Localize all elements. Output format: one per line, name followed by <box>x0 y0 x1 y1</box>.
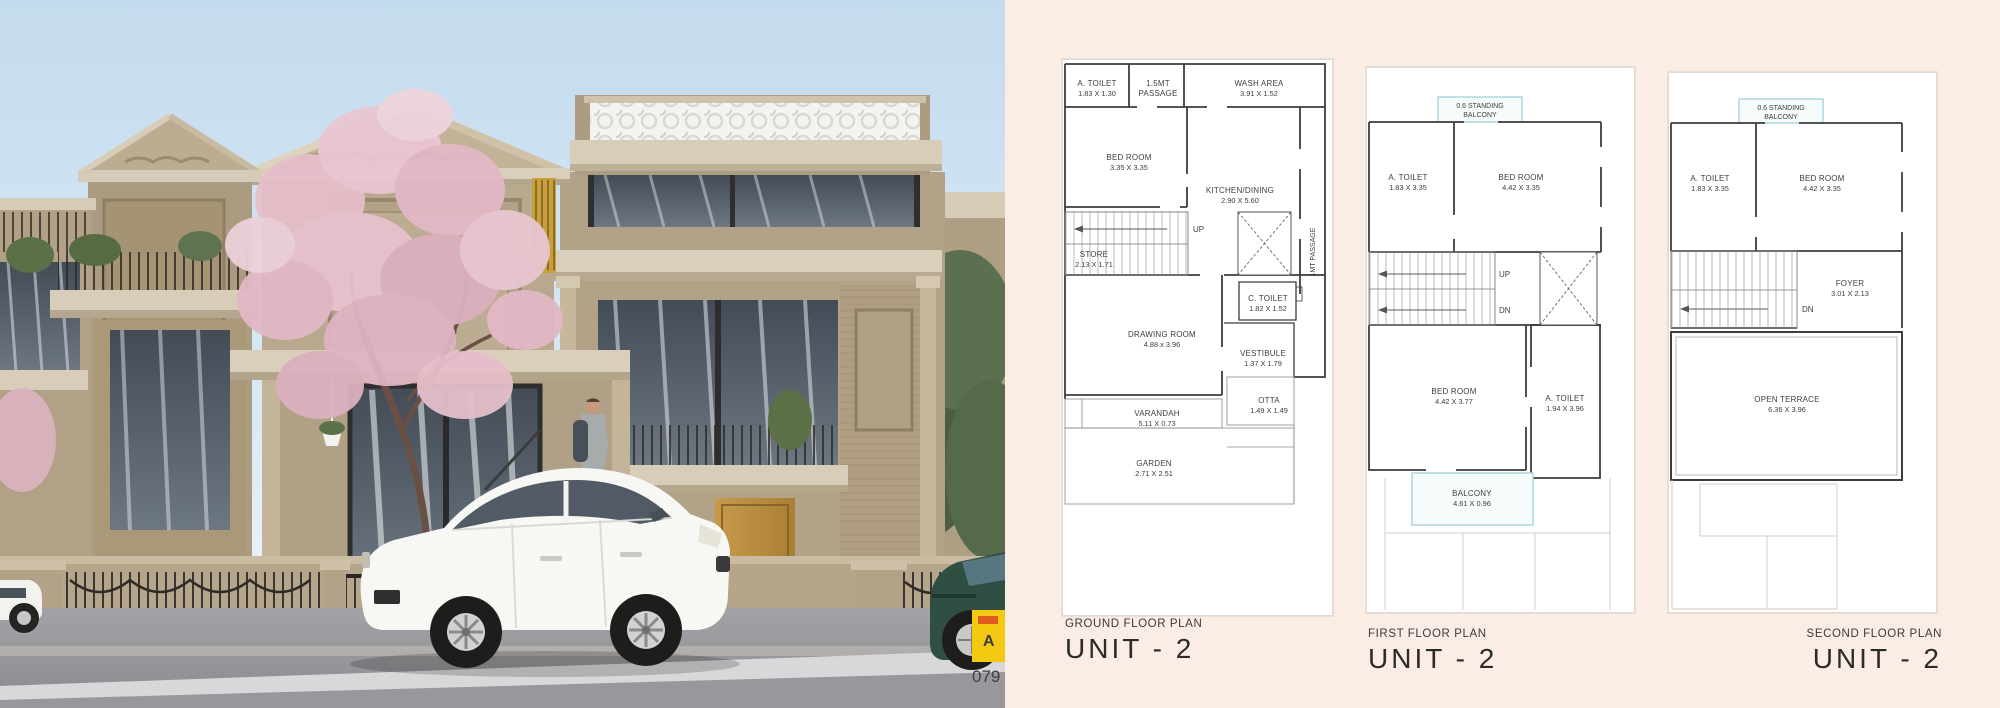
room-dims: 1.83 X 3.35 <box>1691 184 1729 193</box>
room-name: VARANDAH <box>1134 409 1179 418</box>
lift-shaft <box>1238 212 1291 275</box>
room-dims: 3.01 X 2.13 <box>1831 289 1869 298</box>
room-dims: 1.83 X 1.30 <box>1078 89 1116 98</box>
floor-plans-panel: A. TOILET 1.83 X 1.30 1.5MT PASSAGE WASH… <box>1005 0 2000 708</box>
room-name: A. TOILET <box>1388 173 1427 182</box>
room-name: C. TOILET <box>1248 294 1288 303</box>
room-name: KITCHEN/DINING <box>1206 186 1274 195</box>
room-dims: 1.49 X 1.49 <box>1250 406 1288 415</box>
plan-title: FIRST FLOOR PLAN <box>1368 628 1497 640</box>
room-name: FOYER <box>1836 279 1865 288</box>
room-name: A. TOILET <box>1077 79 1116 88</box>
side-passage-label: 1MT PASSAGE <box>1310 227 1317 276</box>
ground-floor-plan-card: A. TOILET 1.83 X 1.30 1.5MT PASSAGE WASH… <box>1062 59 1333 616</box>
room-dims: 2.90 X 5.60 <box>1221 196 1259 205</box>
room-name: DRAWING ROOM <box>1128 330 1196 339</box>
stairs <box>1671 251 1797 328</box>
room-name: BED ROOM <box>1431 387 1476 396</box>
room-dims: 4.42 X 3.35 <box>1502 183 1540 192</box>
room-name: 1.5MT <box>1146 79 1170 88</box>
stairs-up-label: UP <box>1499 270 1510 279</box>
unit-label: UNIT - 2 <box>1065 633 1202 665</box>
room-name: WASH AREA <box>1234 79 1284 88</box>
room-name: A. TOILET <box>1545 394 1584 403</box>
room-dims: 4.42 X 3.35 <box>1803 184 1841 193</box>
second-floor-plan: 0.6 STANDING BALCONY A. TOILET 1.83 X 3.… <box>1668 72 1937 613</box>
room-name: BALCONY <box>1764 114 1798 121</box>
room-name: BED ROOM <box>1799 174 1844 183</box>
room-dims: 4.42 X 3.77 <box>1435 397 1473 406</box>
first-floor-label: FIRST FLOOR PLAN UNIT - 2 <box>1368 628 1497 675</box>
unit-label: UNIT - 2 <box>1368 643 1497 675</box>
villa-render-scene: A 079 <box>0 0 1005 708</box>
front-wheel <box>610 594 682 666</box>
ground-floor-plan: A. TOILET 1.83 X 1.30 1.5MT PASSAGE WASH… <box>1062 59 1333 616</box>
unit-label: UNIT - 2 <box>1668 643 1942 675</box>
room-name: BALCONY <box>1452 489 1492 498</box>
room-name: BED ROOM <box>1498 173 1543 182</box>
ground-floor-label: GROUND FLOOR PLAN UNIT - 2 <box>1065 618 1202 665</box>
room-name: GARDEN <box>1136 459 1171 468</box>
room-name: BED ROOM <box>1106 153 1151 162</box>
room-dims: 1.83 X 3.35 <box>1389 183 1427 192</box>
second-floor-plan-card: 0.6 STANDING BALCONY A. TOILET 1.83 X 3.… <box>1668 72 1937 613</box>
first-floor-plan: 0.6 STANDING BALCONY A. TOILET 1.83 X 3.… <box>1366 67 1635 613</box>
plan-title: GROUND FLOOR PLAN <box>1065 618 1202 630</box>
stairs <box>1369 252 1495 325</box>
lift-shaft <box>1540 252 1597 325</box>
brochure-page: A 079 <box>0 0 2000 708</box>
watermark-badge-letter: A <box>983 633 995 650</box>
watermark: A 079 <box>972 610 1005 686</box>
stairs-down-label: DN <box>1802 305 1814 314</box>
room-dims: 2.71 X 2.51 <box>1135 469 1173 478</box>
room-dims: 4.88 x 3.96 <box>1144 340 1181 349</box>
room-name: A. TOILET <box>1690 174 1729 183</box>
first-floor-plan-card: 0.6 STANDING BALCONY A. TOILET 1.83 X 3.… <box>1366 67 1635 613</box>
room-name: STORE <box>1080 250 1108 259</box>
room-dims: 3.35 X 3.35 <box>1110 163 1148 172</box>
stairs-up-label: UP <box>1193 225 1204 234</box>
room-dims: 1.94 X 3.96 <box>1546 404 1584 413</box>
room-dims: 2.13 X 1.71 <box>1075 260 1113 269</box>
watermark-number: 079 <box>972 667 1000 686</box>
room-dims: 4.61 X 0.96 <box>1453 499 1491 508</box>
plan-title: SECOND FLOOR PLAN <box>1668 628 1942 640</box>
room-name: BALCONY <box>1463 112 1497 119</box>
room-name: OPEN TERRACE <box>1754 395 1819 404</box>
room-dims: 1.82 X 1.52 <box>1249 304 1287 313</box>
room-name: OTTA <box>1258 396 1280 405</box>
room-dims: 1.37 X 1.79 <box>1244 359 1282 368</box>
rear-wheel <box>430 596 502 668</box>
room-dims: 6.36 X 3.96 <box>1768 405 1806 414</box>
room-name: PASSAGE <box>1138 89 1177 98</box>
room-dims: 3.91 X 1.52 <box>1240 89 1278 98</box>
stairs-down-label: DN <box>1499 306 1511 315</box>
room-name: 0.6 STANDING <box>1757 105 1804 112</box>
second-floor-label: SECOND FLOOR PLAN UNIT - 2 <box>1668 628 1942 675</box>
room-name: VESTIBULE <box>1240 349 1286 358</box>
villa-render-photo: A 079 <box>0 0 1005 708</box>
room-name: 0.6 STANDING <box>1456 103 1503 110</box>
room-dims: 5.11 X 0.73 <box>1138 419 1175 428</box>
